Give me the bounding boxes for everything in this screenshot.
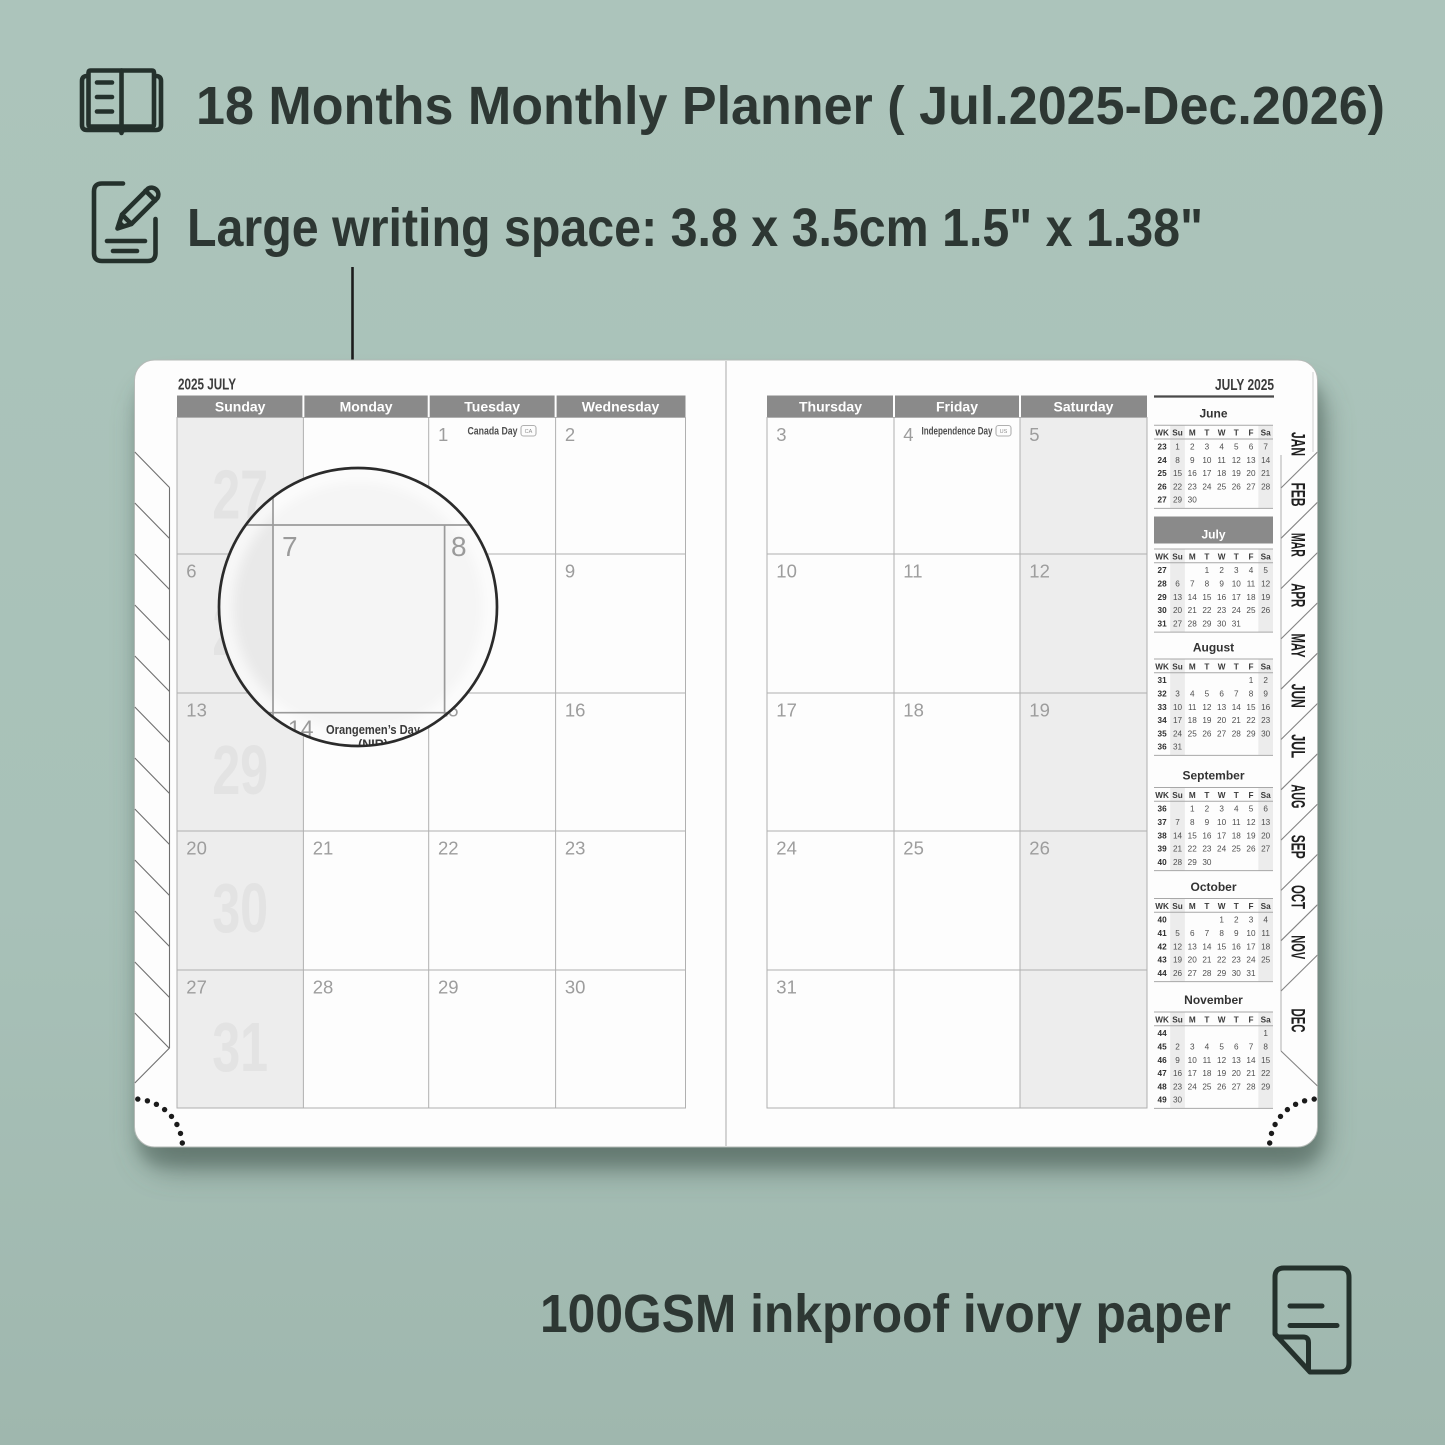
svg-text:11: 11 <box>1217 456 1226 465</box>
svg-text:11: 11 <box>1232 818 1241 827</box>
svg-text:W: W <box>1218 1015 1226 1024</box>
svg-text:2025 JULY: 2025 JULY <box>178 377 236 394</box>
svg-text:17: 17 <box>776 700 797 721</box>
svg-text:46: 46 <box>1158 1056 1168 1065</box>
svg-text:AUG: AUG <box>1287 784 1308 808</box>
svg-text:47: 47 <box>1158 1069 1168 1078</box>
svg-text:43: 43 <box>1158 956 1168 965</box>
svg-text:36: 36 <box>1158 743 1168 752</box>
svg-text:Tuesday: Tuesday <box>464 399 520 415</box>
svg-text:13: 13 <box>186 700 207 721</box>
svg-text:48: 48 <box>1158 1082 1168 1091</box>
svg-text:14: 14 <box>1261 456 1271 465</box>
svg-text:27: 27 <box>1188 969 1198 978</box>
svg-text:WK: WK <box>1155 429 1169 438</box>
svg-text:Monday: Monday <box>340 399 393 415</box>
svg-text:June: June <box>1199 406 1227 420</box>
svg-text:JULY 2025: JULY 2025 <box>1215 377 1274 394</box>
svg-text:24: 24 <box>1173 729 1183 738</box>
svg-text:16: 16 <box>1261 703 1271 712</box>
svg-text:18: 18 <box>903 700 924 721</box>
svg-text:8: 8 <box>1219 929 1224 938</box>
svg-text:8: 8 <box>451 531 467 562</box>
svg-text:10: 10 <box>1188 1056 1198 1065</box>
svg-text:30: 30 <box>565 977 586 998</box>
svg-text:Canada Day: Canada Day <box>468 426 519 438</box>
svg-text:28: 28 <box>1188 619 1198 628</box>
svg-text:2: 2 <box>1175 1043 1180 1052</box>
svg-text:23: 23 <box>565 838 586 859</box>
svg-text:26: 26 <box>1029 838 1050 859</box>
svg-text:22: 22 <box>1246 716 1256 725</box>
svg-text:Independence Day: Independence Day <box>922 426 994 438</box>
svg-text:2: 2 <box>1263 676 1268 685</box>
svg-text:10: 10 <box>1217 818 1227 827</box>
svg-text:13: 13 <box>1217 703 1227 712</box>
svg-text:4: 4 <box>903 424 913 445</box>
svg-text:11: 11 <box>1247 580 1256 589</box>
svg-text:20: 20 <box>1232 1069 1242 1078</box>
svg-text:13: 13 <box>1173 593 1183 602</box>
svg-text:28: 28 <box>1261 482 1271 491</box>
svg-text:17: 17 <box>1246 942 1256 951</box>
svg-text:12: 12 <box>1173 942 1183 951</box>
svg-text:Friday: Friday <box>936 399 978 415</box>
svg-text:MAY: MAY <box>1287 634 1308 658</box>
svg-text:27: 27 <box>1232 1082 1242 1091</box>
svg-text:23: 23 <box>1158 443 1168 452</box>
svg-text:16: 16 <box>1202 831 1212 840</box>
svg-text:4: 4 <box>1249 566 1254 575</box>
svg-text:Su: Su <box>1172 902 1182 911</box>
svg-text:16: 16 <box>1232 942 1242 951</box>
svg-text:41: 41 <box>1158 929 1168 938</box>
svg-text:20: 20 <box>186 838 207 859</box>
svg-text:20: 20 <box>1217 716 1227 725</box>
svg-text:11: 11 <box>1261 929 1270 938</box>
svg-text:US: US <box>1000 429 1008 435</box>
svg-text:15: 15 <box>1217 942 1227 951</box>
svg-text:7: 7 <box>1205 929 1210 938</box>
svg-text:30: 30 <box>1188 496 1198 505</box>
svg-text:15: 15 <box>1173 469 1183 478</box>
svg-text:29: 29 <box>438 977 459 998</box>
svg-text:17: 17 <box>1232 593 1242 602</box>
svg-text:W: W <box>1218 552 1226 561</box>
svg-text:9: 9 <box>1234 929 1239 938</box>
svg-text:12: 12 <box>1217 1056 1227 1065</box>
svg-text:Sa: Sa <box>1261 662 1271 671</box>
svg-text:30: 30 <box>1232 969 1242 978</box>
svg-text:38: 38 <box>1158 831 1168 840</box>
svg-text:9: 9 <box>1205 818 1210 827</box>
svg-text:28: 28 <box>1173 858 1183 867</box>
svg-text:10: 10 <box>776 561 797 582</box>
svg-text:25: 25 <box>903 838 924 859</box>
svg-text:26: 26 <box>1232 482 1242 491</box>
svg-text:1: 1 <box>438 424 448 445</box>
svg-text:30: 30 <box>1202 858 1212 867</box>
svg-text:July: July <box>1201 528 1225 542</box>
svg-text:31: 31 <box>1173 743 1183 752</box>
svg-text:24: 24 <box>1188 1082 1198 1091</box>
svg-text:October: October <box>1190 880 1236 894</box>
svg-text:18: 18 <box>1217 469 1227 478</box>
svg-text:1: 1 <box>1263 1029 1268 1038</box>
svg-text:August: August <box>1193 641 1234 655</box>
svg-text:T: T <box>1234 429 1239 438</box>
svg-text:Sa: Sa <box>1261 902 1271 911</box>
svg-text:8: 8 <box>1263 1043 1268 1052</box>
svg-text:39: 39 <box>1158 845 1168 854</box>
svg-text:24: 24 <box>1246 956 1256 965</box>
svg-text:T: T <box>1204 791 1209 800</box>
svg-text:31: 31 <box>1232 619 1242 628</box>
svg-text:F: F <box>1248 552 1253 561</box>
svg-text:21: 21 <box>1246 1069 1256 1078</box>
svg-text:APR: APR <box>1287 583 1308 607</box>
svg-text:17: 17 <box>1188 1069 1198 1078</box>
svg-text:22: 22 <box>438 838 459 859</box>
svg-text:16: 16 <box>1173 1069 1183 1078</box>
svg-text:10: 10 <box>1246 929 1256 938</box>
svg-text:12: 12 <box>1029 561 1050 582</box>
svg-text:4: 4 <box>1190 690 1195 699</box>
svg-text:WK: WK <box>1155 662 1169 671</box>
svg-text:19: 19 <box>1202 716 1212 725</box>
svg-text:18: 18 <box>1261 942 1271 951</box>
svg-text:W: W <box>1218 662 1226 671</box>
svg-text:15: 15 <box>1246 703 1256 712</box>
svg-text:F: F <box>1248 791 1253 800</box>
svg-text:9: 9 <box>1219 580 1224 589</box>
svg-text:WK: WK <box>1155 902 1169 911</box>
svg-text:19: 19 <box>1261 593 1271 602</box>
svg-text:22: 22 <box>1173 482 1183 491</box>
svg-text:T: T <box>1204 902 1209 911</box>
svg-text:13: 13 <box>1261 818 1271 827</box>
svg-text:28: 28 <box>1232 729 1242 738</box>
svg-text:T: T <box>1204 429 1209 438</box>
svg-text:Su: Su <box>1172 662 1182 671</box>
svg-text:12: 12 <box>1261 580 1271 589</box>
svg-text:23: 23 <box>1261 716 1271 725</box>
svg-text:6: 6 <box>1249 443 1254 452</box>
svg-text:27: 27 <box>1217 729 1227 738</box>
svg-text:15: 15 <box>1261 1056 1271 1065</box>
svg-text:25: 25 <box>1246 606 1256 615</box>
svg-text:26: 26 <box>1158 482 1168 491</box>
svg-text:5: 5 <box>1249 805 1254 814</box>
svg-text:4: 4 <box>1263 916 1268 925</box>
svg-text:WK: WK <box>1155 1015 1169 1024</box>
svg-text:3: 3 <box>1219 805 1224 814</box>
svg-text:M: M <box>1189 1015 1196 1024</box>
svg-text:24: 24 <box>776 838 797 859</box>
svg-text:29: 29 <box>1202 619 1212 628</box>
svg-text:7: 7 <box>282 531 298 562</box>
svg-text:20: 20 <box>1261 831 1271 840</box>
svg-text:17: 17 <box>1173 716 1183 725</box>
svg-text:JUL: JUL <box>1287 734 1308 758</box>
svg-text:MAR: MAR <box>1287 533 1308 557</box>
svg-text:9: 9 <box>565 561 575 582</box>
svg-text:19: 19 <box>1232 469 1242 478</box>
svg-text:23: 23 <box>1217 606 1227 615</box>
svg-text:3: 3 <box>1205 443 1210 452</box>
svg-text:F: F <box>1248 902 1253 911</box>
svg-text:26: 26 <box>1202 729 1212 738</box>
svg-text:36: 36 <box>1158 805 1168 814</box>
svg-text:M: M <box>1189 429 1196 438</box>
svg-text:29: 29 <box>1188 858 1198 867</box>
svg-text:7: 7 <box>1234 690 1239 699</box>
svg-text:M: M <box>1189 662 1196 671</box>
svg-text:JUN: JUN <box>1287 684 1308 708</box>
svg-text:DEC: DEC <box>1287 1009 1308 1033</box>
svg-text:23: 23 <box>1173 1082 1183 1091</box>
svg-text:16: 16 <box>1188 469 1198 478</box>
svg-text:28: 28 <box>1202 969 1212 978</box>
svg-text:9: 9 <box>1263 690 1268 699</box>
svg-text:26: 26 <box>1173 969 1183 978</box>
svg-text:CA: CA <box>525 429 533 435</box>
svg-text:100GSM inkproof ivory paper: 100GSM inkproof ivory paper <box>540 1284 1231 1344</box>
svg-text:6: 6 <box>1219 690 1224 699</box>
svg-text:30: 30 <box>212 869 268 947</box>
svg-text:25: 25 <box>1232 845 1242 854</box>
svg-text:5: 5 <box>1219 1043 1224 1052</box>
svg-text:37: 37 <box>1158 818 1168 827</box>
svg-text:22: 22 <box>1202 606 1212 615</box>
svg-text:2: 2 <box>1219 566 1224 575</box>
svg-text:8: 8 <box>1249 690 1254 699</box>
svg-text:13: 13 <box>1188 942 1198 951</box>
svg-text:6: 6 <box>1175 580 1180 589</box>
svg-text:29: 29 <box>1246 729 1256 738</box>
svg-text:25: 25 <box>1261 956 1271 965</box>
svg-text:6: 6 <box>1263 805 1268 814</box>
svg-text:15: 15 <box>1202 593 1212 602</box>
svg-text:SEP: SEP <box>1287 835 1308 859</box>
svg-text:31: 31 <box>1246 969 1256 978</box>
svg-text:22: 22 <box>1261 1069 1271 1078</box>
svg-text:2: 2 <box>1234 916 1239 925</box>
svg-text:2: 2 <box>1205 805 1210 814</box>
svg-text:32: 32 <box>1158 690 1168 699</box>
svg-text:27: 27 <box>186 977 207 998</box>
svg-text:6: 6 <box>1234 1043 1239 1052</box>
svg-text:8: 8 <box>1190 818 1195 827</box>
svg-text:49: 49 <box>1158 1096 1168 1105</box>
svg-text:24: 24 <box>1158 456 1168 465</box>
svg-text:31: 31 <box>776 977 797 998</box>
svg-text:JAN: JAN <box>1287 432 1308 456</box>
svg-text:10: 10 <box>1202 456 1212 465</box>
svg-text:Large writing space: 3.8 x 3.5: Large writing space: 3.8 x 3.5cm 1.5" x … <box>187 198 1203 258</box>
svg-text:Sunday: Sunday <box>215 399 266 415</box>
svg-text:1: 1 <box>1249 676 1254 685</box>
svg-text:WK: WK <box>1155 791 1169 800</box>
svg-text:9: 9 <box>1190 456 1195 465</box>
svg-text:14: 14 <box>1246 1056 1256 1065</box>
svg-text:F: F <box>1248 662 1253 671</box>
svg-text:14: 14 <box>1232 703 1242 712</box>
svg-text:29: 29 <box>1158 593 1168 602</box>
svg-text:Thursday: Thursday <box>799 399 862 415</box>
svg-text:29: 29 <box>1173 496 1183 505</box>
svg-text:Su: Su <box>1172 429 1182 438</box>
svg-text:Su: Su <box>1172 791 1182 800</box>
svg-text:4: 4 <box>1205 1043 1210 1052</box>
svg-text:18: 18 <box>1202 1069 1212 1078</box>
svg-text:W: W <box>1218 902 1226 911</box>
svg-text:12: 12 <box>1232 456 1242 465</box>
svg-text:1: 1 <box>1190 805 1195 814</box>
svg-text:14: 14 <box>1173 831 1183 840</box>
svg-text:23: 23 <box>1188 482 1198 491</box>
svg-text:31: 31 <box>1158 676 1168 685</box>
svg-text:5: 5 <box>1263 566 1268 575</box>
svg-text:T: T <box>1234 902 1239 911</box>
svg-text:3: 3 <box>1249 916 1254 925</box>
svg-text:18: 18 <box>1232 831 1242 840</box>
svg-text:2: 2 <box>565 424 575 445</box>
svg-text:28: 28 <box>313 977 334 998</box>
svg-text:1: 1 <box>1205 566 1210 575</box>
svg-text:40: 40 <box>1158 858 1168 867</box>
svg-text:7: 7 <box>1263 443 1268 452</box>
svg-text:29: 29 <box>212 731 268 809</box>
svg-text:17: 17 <box>1217 831 1227 840</box>
svg-text:13: 13 <box>1232 1056 1242 1065</box>
svg-text:T: T <box>1204 662 1209 671</box>
svg-text:11: 11 <box>1203 1056 1212 1065</box>
svg-text:9: 9 <box>1175 1056 1180 1065</box>
svg-text:16: 16 <box>565 700 586 721</box>
svg-text:19: 19 <box>1217 1069 1227 1078</box>
svg-text:34: 34 <box>1158 716 1168 725</box>
svg-text:6: 6 <box>186 561 196 582</box>
svg-text:Su: Su <box>1172 1015 1182 1024</box>
svg-text:3: 3 <box>1190 1043 1195 1052</box>
svg-text:30: 30 <box>1217 619 1227 628</box>
svg-text:Wednesday: Wednesday <box>582 399 660 415</box>
svg-text:22: 22 <box>1188 845 1198 854</box>
svg-text:24: 24 <box>1232 606 1242 615</box>
svg-text:16: 16 <box>1217 593 1227 602</box>
svg-text:25: 25 <box>1158 469 1168 478</box>
svg-text:OCT: OCT <box>1287 885 1308 909</box>
svg-text:19: 19 <box>1029 700 1050 721</box>
svg-text:F: F <box>1248 1015 1253 1024</box>
svg-text:20: 20 <box>1188 956 1198 965</box>
svg-text:27: 27 <box>1173 619 1183 628</box>
svg-text:33: 33 <box>1158 703 1168 712</box>
svg-text:8: 8 <box>1205 580 1210 589</box>
svg-text:14: 14 <box>1188 593 1198 602</box>
svg-text:3: 3 <box>776 424 786 445</box>
svg-text:10: 10 <box>1232 580 1242 589</box>
svg-text:26: 26 <box>1246 845 1256 854</box>
svg-text:5: 5 <box>1029 424 1039 445</box>
svg-text:27: 27 <box>1261 845 1271 854</box>
svg-text:22: 22 <box>1217 956 1227 965</box>
svg-text:19: 19 <box>1246 831 1256 840</box>
svg-text:20: 20 <box>1173 606 1183 615</box>
svg-text:3: 3 <box>1234 566 1239 575</box>
svg-text:28: 28 <box>1158 580 1168 589</box>
svg-text:14: 14 <box>1202 942 1212 951</box>
svg-text:T: T <box>1234 662 1239 671</box>
svg-text:31: 31 <box>1158 619 1168 628</box>
svg-text:September: September <box>1182 769 1244 783</box>
svg-text:24: 24 <box>1202 482 1212 491</box>
svg-text:1: 1 <box>1219 916 1224 925</box>
svg-text:25: 25 <box>1217 482 1227 491</box>
svg-text:F: F <box>1248 429 1253 438</box>
svg-text:11: 11 <box>903 561 922 582</box>
svg-text:W: W <box>1218 791 1226 800</box>
svg-text:18 Months Monthly Planner ( Ju: 18 Months Monthly Planner ( Jul.2025-Dec… <box>196 76 1385 136</box>
svg-text:13: 13 <box>1246 456 1256 465</box>
svg-text:27: 27 <box>1158 566 1168 575</box>
svg-text:T: T <box>1234 1015 1239 1024</box>
svg-text:25: 25 <box>1188 729 1198 738</box>
svg-text:21: 21 <box>1173 845 1183 854</box>
svg-text:7: 7 <box>1175 818 1180 827</box>
svg-text:M: M <box>1189 902 1196 911</box>
svg-text:Sa: Sa <box>1261 1015 1271 1024</box>
svg-text:30: 30 <box>1261 729 1271 738</box>
svg-text:20: 20 <box>1246 469 1256 478</box>
svg-text:M: M <box>1189 791 1196 800</box>
svg-text:29: 29 <box>1217 969 1227 978</box>
svg-text:28: 28 <box>1246 1082 1256 1091</box>
svg-text:17: 17 <box>1202 469 1212 478</box>
svg-text:Sa: Sa <box>1261 791 1271 800</box>
svg-text:21: 21 <box>1261 469 1271 478</box>
svg-text:4: 4 <box>1219 443 1224 452</box>
svg-text:4: 4 <box>1234 805 1239 814</box>
svg-text:T: T <box>1204 552 1209 561</box>
svg-text:24: 24 <box>1217 845 1227 854</box>
svg-text:19: 19 <box>1173 956 1183 965</box>
svg-text:2: 2 <box>1190 443 1195 452</box>
svg-text:23: 23 <box>1232 956 1242 965</box>
svg-text:November: November <box>1184 993 1243 1007</box>
svg-text:5: 5 <box>1205 690 1210 699</box>
svg-text:26: 26 <box>1217 1082 1227 1091</box>
svg-text:35: 35 <box>1158 729 1168 738</box>
svg-text:Sa: Sa <box>1261 552 1271 561</box>
svg-text:27: 27 <box>1246 482 1256 491</box>
svg-text:40: 40 <box>1158 916 1168 925</box>
svg-text:11: 11 <box>1188 703 1197 712</box>
svg-text:44: 44 <box>1158 1029 1168 1038</box>
svg-text:8: 8 <box>1175 456 1180 465</box>
svg-text:7: 7 <box>1190 580 1195 589</box>
svg-text:25: 25 <box>1202 1082 1212 1091</box>
svg-text:5: 5 <box>1175 929 1180 938</box>
svg-text:18: 18 <box>1188 716 1198 725</box>
svg-text:18: 18 <box>1246 593 1256 602</box>
svg-text:W: W <box>1218 429 1226 438</box>
svg-text:Sa: Sa <box>1261 429 1271 438</box>
svg-text:7: 7 <box>1249 1043 1254 1052</box>
svg-text:Saturday: Saturday <box>1054 399 1114 415</box>
svg-text:26: 26 <box>1261 606 1271 615</box>
